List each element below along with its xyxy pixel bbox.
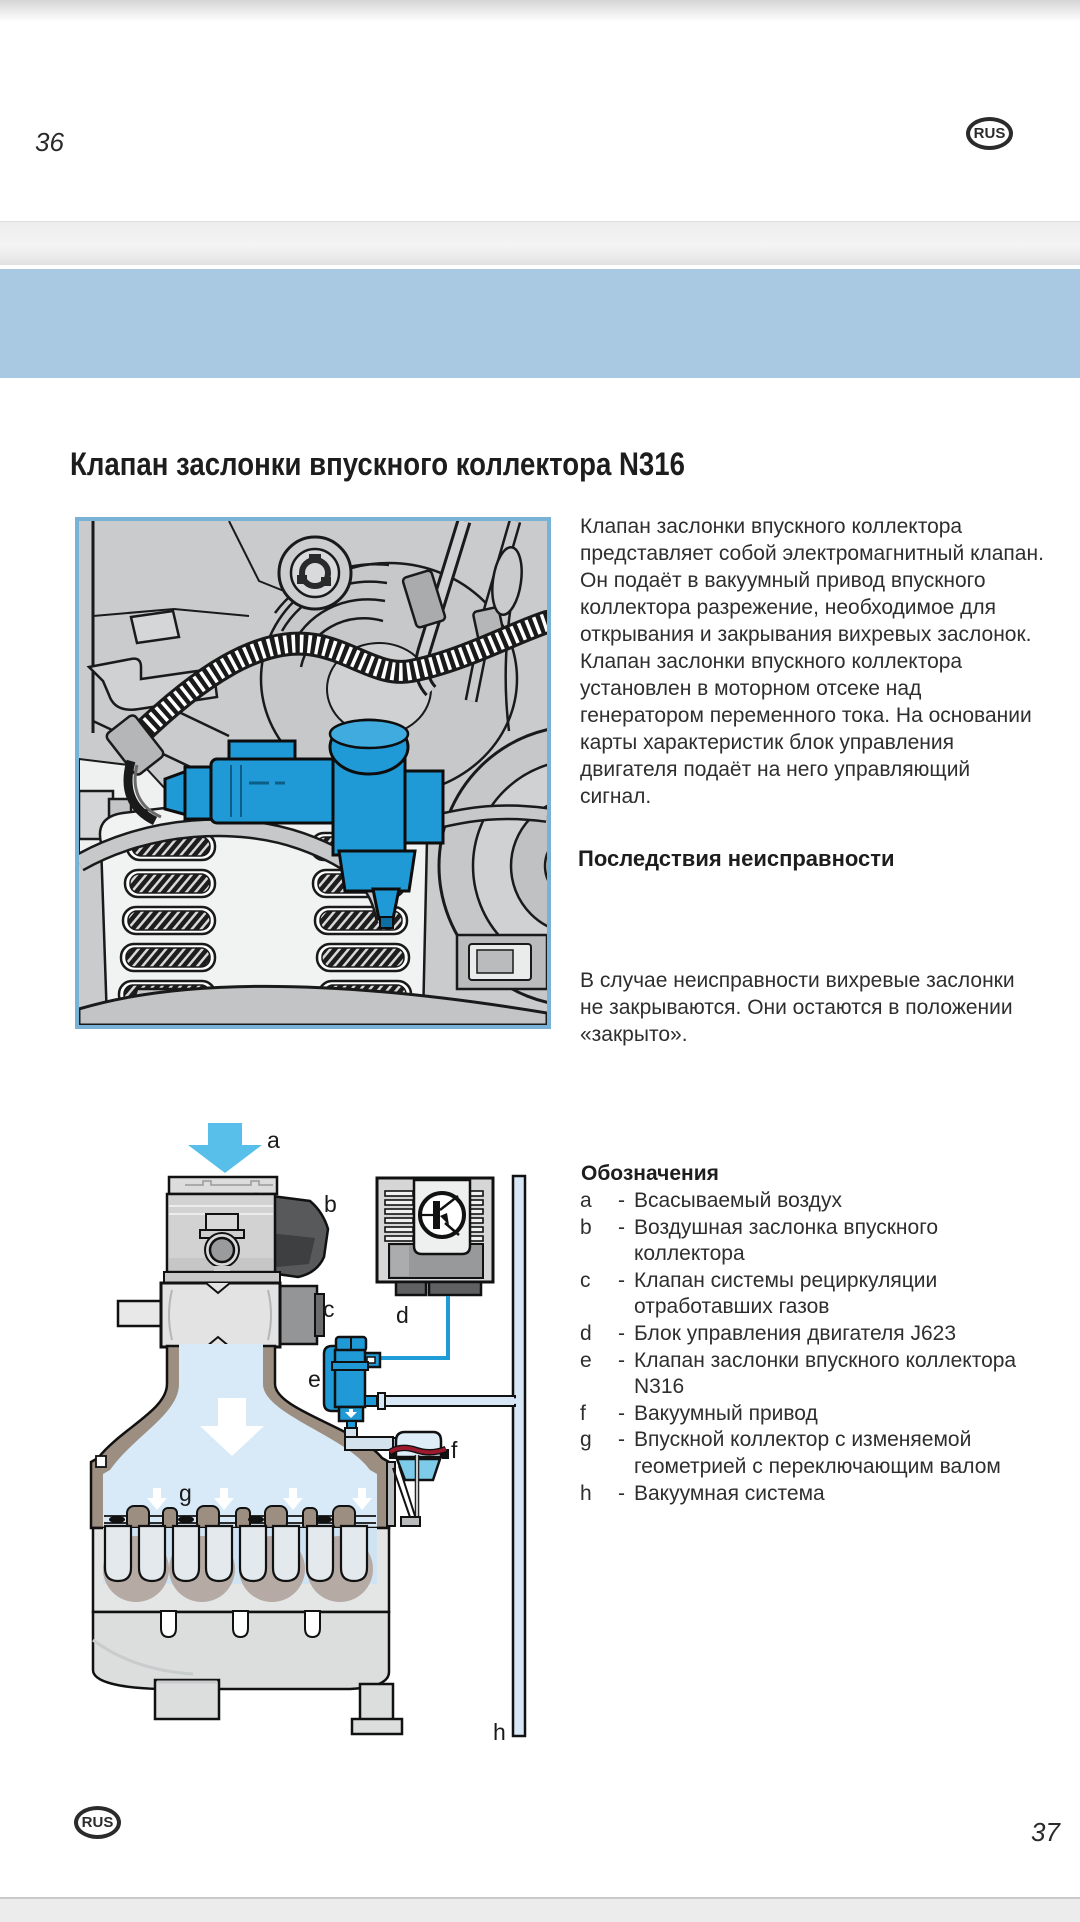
svg-text:h: h bbox=[493, 1719, 506, 1745]
svg-text:d: d bbox=[396, 1302, 409, 1328]
svg-text:f: f bbox=[451, 1437, 458, 1463]
svg-text:g: g bbox=[179, 1480, 192, 1506]
svg-text:e: e bbox=[308, 1366, 321, 1392]
svg-text:b: b bbox=[324, 1191, 337, 1217]
svg-text:c: c bbox=[323, 1296, 335, 1322]
svg-text:a: a bbox=[267, 1127, 280, 1153]
